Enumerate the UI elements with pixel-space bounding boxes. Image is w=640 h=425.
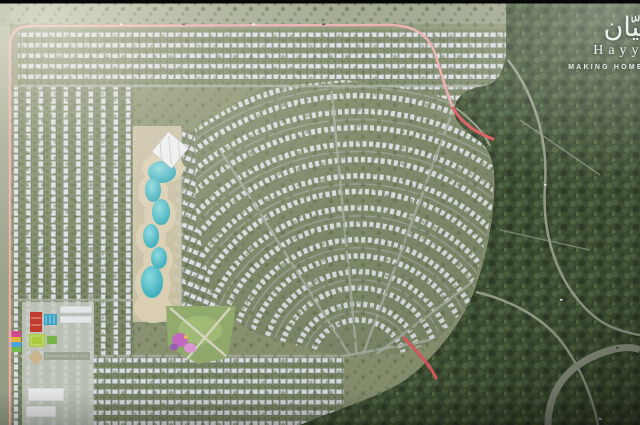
vignette-bottom (0, 390, 640, 425)
vignette-bottom-right (0, 0, 640, 425)
top-letterbox-bar (0, 0, 640, 4)
hayyan-masterplan-screenshot: حيّان Hayyan MAKING HOMES HUMAN (0, 0, 640, 425)
masterplan-aerial-render (0, 0, 640, 425)
